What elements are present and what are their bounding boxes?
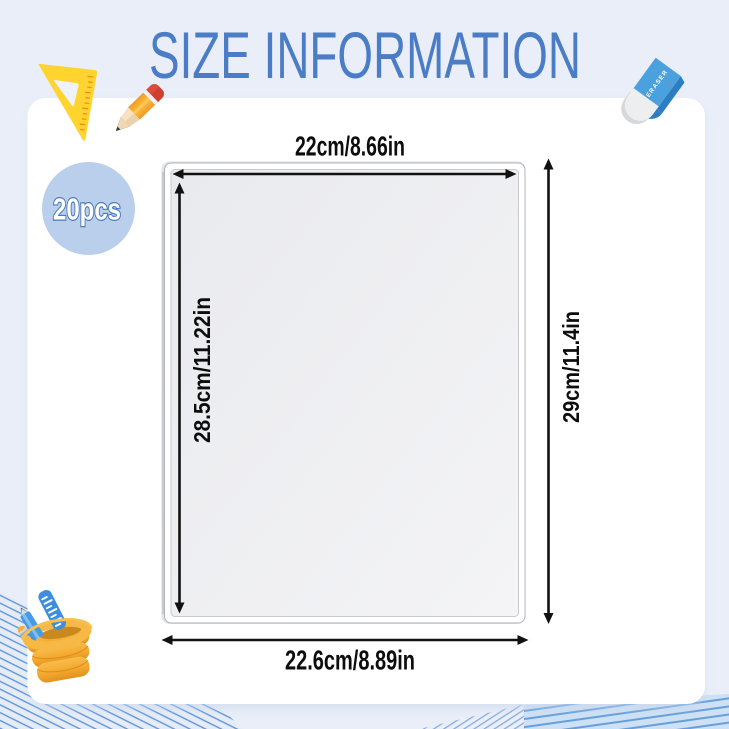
svg-text:SIZE INFORMATION: SIZE INFORMATION bbox=[149, 18, 581, 92]
svg-text:28.5cm/11.22in: 28.5cm/11.22in bbox=[189, 297, 215, 443]
svg-text:29cm/11.4in: 29cm/11.4in bbox=[558, 311, 584, 423]
svg-text:22cm/8.66in: 22cm/8.66in bbox=[295, 131, 405, 162]
svg-text:20pcs: 20pcs bbox=[53, 192, 121, 227]
svg-text:22.6cm/8.89in: 22.6cm/8.89in bbox=[285, 645, 415, 676]
